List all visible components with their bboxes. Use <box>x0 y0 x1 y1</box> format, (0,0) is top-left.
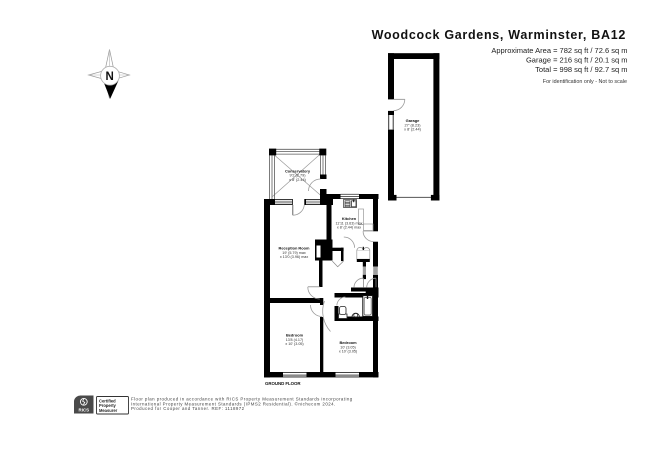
svg-text:Woodcock Gardens, Warminster,: Woodcock Gardens, Warminster, BA12 <box>372 28 626 42</box>
svg-text:Approximate Area = 782 sq ft /: Approximate Area = 782 sq ft / 72.6 sq m <box>491 46 627 55</box>
svg-text:GROUND FLOOR: GROUND FLOOR <box>265 381 301 386</box>
svg-text:Garage: Garage <box>406 118 421 123</box>
svg-text:Garage = 216 sq ft / 20.1 sq m: Garage = 216 sq ft / 20.1 sq m <box>526 55 628 64</box>
svg-text:RICS: RICS <box>79 407 90 412</box>
svg-text:x 10' (3.05): x 10' (3.05) <box>339 350 357 354</box>
svg-text:Bedroom: Bedroom <box>286 333 304 338</box>
svg-text:Measurer: Measurer <box>99 408 118 413</box>
svg-text:x 8' (2.44): x 8' (2.44) <box>404 128 421 132</box>
svg-text:Kitchen: Kitchen <box>342 216 357 221</box>
svg-text:Produced for Cooper and Tanner: Produced for Cooper and Tanner. REF: 111… <box>131 406 245 411</box>
svg-text:x 13'0 (3.96) max: x 13'0 (3.96) max <box>280 255 309 259</box>
svg-text:Total = 998 sq ft / 92.7 sq m: Total = 998 sq ft / 92.7 sq m <box>535 65 627 74</box>
svg-text:x 10' (3.05): x 10' (3.05) <box>285 342 303 346</box>
svg-text:Reception Room: Reception Room <box>279 246 310 251</box>
svg-text:For identification only - Not: For identification only - Not to scale <box>543 79 627 85</box>
svg-text:Bedroom: Bedroom <box>339 340 357 345</box>
svg-text:27' (8.23): 27' (8.23) <box>405 123 422 127</box>
svg-text:N: N <box>105 71 113 83</box>
svg-text:x 8' (2.44) max: x 8' (2.44) max <box>337 226 361 230</box>
svg-text:x 8' (2.44): x 8' (2.44) <box>289 178 306 182</box>
